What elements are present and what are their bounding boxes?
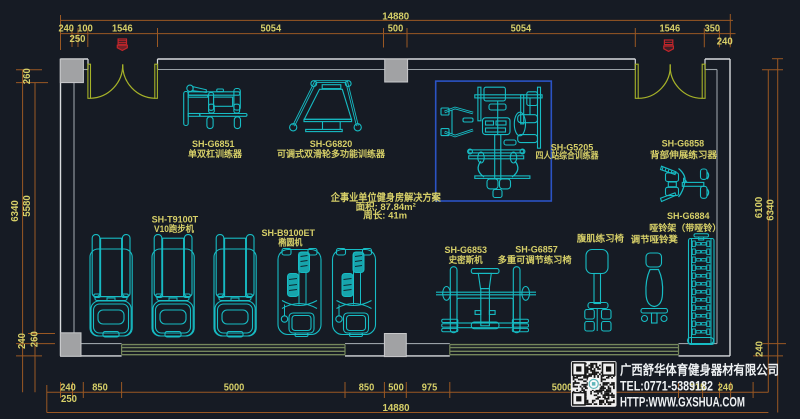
svg-text:四人站综合训练器: 四人站综合训练器: [536, 150, 600, 161]
svg-text:5000: 5000: [224, 382, 245, 393]
svg-text:SH-G6820: SH-G6820: [310, 139, 353, 149]
svg-text:周长: 41m: 周长: 41m: [363, 210, 407, 222]
svg-text:500: 500: [388, 24, 404, 35]
svg-text:6100: 6100: [754, 196, 765, 218]
svg-text:哑铃架（带哑铃）: 哑铃架（带哑铃）: [649, 222, 721, 233]
svg-text:背部伸展练习器: 背部伸展练习器: [650, 149, 718, 160]
svg-text:250: 250: [70, 34, 86, 45]
svg-text:250: 250: [61, 394, 77, 405]
svg-text:5054: 5054: [511, 24, 532, 35]
svg-text:可调式双滑轮多功能训练器: 可调式双滑轮多功能训练器: [277, 148, 386, 159]
svg-text:6340: 6340: [765, 199, 776, 221]
svg-text:1546: 1546: [112, 24, 133, 35]
svg-text:6340: 6340: [10, 200, 21, 222]
svg-text:史密斯机: 史密斯机: [449, 254, 483, 265]
svg-text:单双杠训练器: 单双杠训练器: [188, 148, 243, 159]
svg-text:SH-G6858: SH-G6858: [662, 139, 705, 149]
svg-text:广西舒华体育健身器材有限公司: 广西舒华体育健身器材有限公司: [620, 363, 779, 378]
svg-text:240: 240: [754, 341, 765, 357]
svg-text:240: 240: [58, 24, 74, 35]
svg-text:5054: 5054: [261, 24, 282, 35]
svg-text:HTTP:WWW.GXSHUA.COM: HTTP:WWW.GXSHUA.COM: [620, 394, 745, 409]
svg-text:240: 240: [60, 382, 76, 393]
svg-text:腹肌练习椅: 腹肌练习椅: [576, 233, 624, 244]
svg-text:240: 240: [17, 333, 28, 349]
svg-text:SH-G6857: SH-G6857: [515, 245, 558, 255]
svg-text:14880: 14880: [382, 12, 409, 23]
svg-text:260: 260: [22, 68, 33, 84]
svg-text:5000: 5000: [552, 382, 573, 393]
svg-text:1546: 1546: [660, 24, 681, 35]
svg-text:100: 100: [77, 24, 93, 35]
svg-text:500: 500: [388, 382, 404, 393]
svg-text:14880: 14880: [383, 403, 410, 414]
svg-text:SH-G6853: SH-G6853: [445, 245, 488, 255]
svg-text:TEL:0771-5389182: TEL:0771-5389182: [620, 378, 713, 393]
svg-text:椭圆机: 椭圆机: [278, 236, 302, 247]
svg-text:240: 240: [717, 37, 733, 48]
svg-text:5580: 5580: [22, 195, 33, 217]
svg-text:260: 260: [30, 331, 41, 347]
svg-text:850: 850: [359, 382, 375, 393]
svg-text:SH-G6851: SH-G6851: [192, 139, 235, 149]
svg-text:多重可调节练习椅: 多重可调节练习椅: [498, 254, 572, 265]
svg-text:975: 975: [422, 382, 438, 393]
svg-text:调节哑铃凳: 调节哑铃凳: [631, 234, 679, 245]
svg-text:850: 850: [92, 382, 108, 393]
svg-text:V10跑步机: V10跑步机: [154, 223, 194, 234]
svg-text:240: 240: [718, 382, 734, 393]
svg-text:350: 350: [705, 24, 721, 35]
svg-text:SH-G6884: SH-G6884: [667, 211, 710, 221]
